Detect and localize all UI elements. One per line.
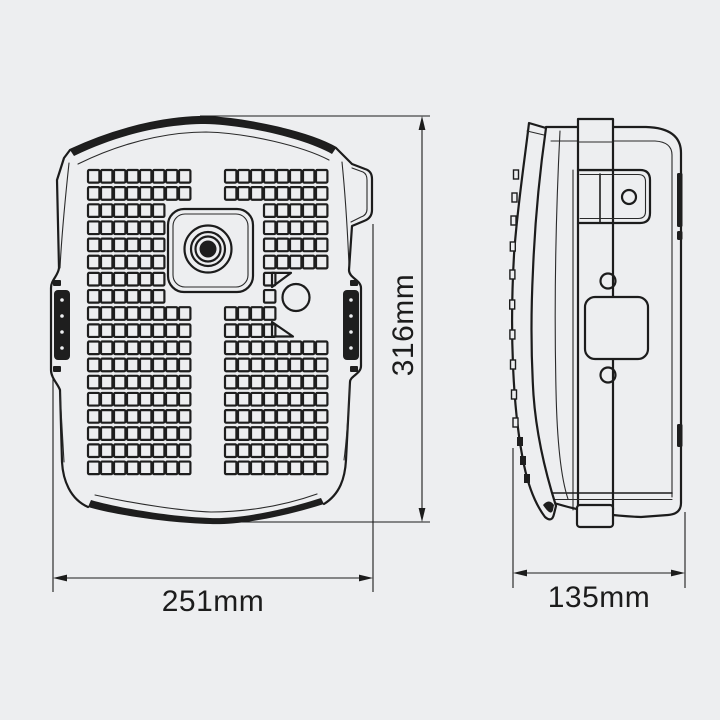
grille-cell xyxy=(88,204,99,217)
grille-cell xyxy=(114,307,125,320)
latch-tooth-dark xyxy=(517,437,523,446)
grille-cell xyxy=(166,324,177,337)
width-dimension-label: 251mm xyxy=(162,585,265,618)
grille-cell xyxy=(127,393,138,406)
grille-cell xyxy=(179,427,190,440)
grille-cell xyxy=(303,410,314,423)
grille-cell xyxy=(251,393,262,406)
grille-cell xyxy=(303,256,314,269)
grille-cell xyxy=(290,342,301,355)
grille-cell xyxy=(88,376,99,389)
grille-cell xyxy=(153,239,164,252)
grille-cell xyxy=(251,187,262,200)
grille-cell xyxy=(264,359,275,372)
grille-cell xyxy=(251,359,262,372)
grille-cell xyxy=(277,462,288,475)
grille-cell xyxy=(127,170,138,183)
grille-cell xyxy=(179,307,190,320)
grille-cell xyxy=(316,239,327,252)
grille-cell xyxy=(101,324,112,337)
grille-cell xyxy=(290,359,301,372)
grille-cell xyxy=(88,221,99,234)
grille-cell xyxy=(264,170,275,183)
grille-cell xyxy=(264,462,275,475)
grille-cell xyxy=(127,444,138,457)
grille-cell xyxy=(114,444,125,457)
grille-cell xyxy=(127,462,138,475)
grille-cell xyxy=(277,187,288,200)
grille-cell xyxy=(114,462,125,475)
grille-cell xyxy=(166,359,177,372)
latch-dot xyxy=(60,330,64,334)
grille-cell xyxy=(179,187,190,200)
grille-cell xyxy=(127,256,138,269)
strap-block-top xyxy=(578,119,613,170)
grille-cell xyxy=(238,410,249,423)
grille-cell xyxy=(303,187,314,200)
grille-cell xyxy=(140,239,151,252)
grille-cell xyxy=(153,221,164,234)
grille-cell xyxy=(277,342,288,355)
grille-cell xyxy=(225,359,236,372)
grille-cell xyxy=(264,239,275,252)
grille-cell xyxy=(179,359,190,372)
grille-cell xyxy=(225,324,236,337)
grille-cell xyxy=(166,393,177,406)
grille-cell xyxy=(140,393,151,406)
front-view xyxy=(51,117,372,524)
grille-cell xyxy=(264,376,275,389)
grille-cell xyxy=(140,273,151,286)
grille-cell xyxy=(290,204,301,217)
grille-cell xyxy=(153,376,164,389)
grille-cell xyxy=(264,342,275,355)
grille-cell xyxy=(225,410,236,423)
grille-cell xyxy=(127,307,138,320)
grille-cell xyxy=(290,376,301,389)
grille-cell xyxy=(88,342,99,355)
grille-cell xyxy=(225,462,236,475)
grille-cell xyxy=(238,376,249,389)
grille-cell xyxy=(153,427,164,440)
grille-cell xyxy=(88,273,99,286)
grille-cell xyxy=(140,307,151,320)
latch-tooth-dark xyxy=(524,474,530,483)
latch-tooth xyxy=(511,216,516,225)
grille-cell xyxy=(114,256,125,269)
grille-cell xyxy=(316,342,327,355)
grille-cell xyxy=(303,239,314,252)
side-view xyxy=(510,119,683,527)
latch-tooth xyxy=(513,418,518,427)
hinge-segment xyxy=(677,173,683,227)
grille-cell xyxy=(114,393,125,406)
grille-cell xyxy=(88,444,99,457)
grille-cell xyxy=(114,273,125,286)
grille-cell xyxy=(277,376,288,389)
hinge-segment xyxy=(677,424,683,447)
grille-cell xyxy=(179,444,190,457)
latch-dot xyxy=(349,298,353,302)
grille-cell xyxy=(101,187,112,200)
grille-cell xyxy=(264,273,275,286)
grille-cell xyxy=(277,444,288,457)
grille-cell xyxy=(153,393,164,406)
grille-cell xyxy=(166,376,177,389)
grille-cell xyxy=(153,290,164,303)
latch-tooth xyxy=(512,390,517,399)
grille-cell xyxy=(88,410,99,423)
grille-cell xyxy=(88,462,99,475)
grille-cell xyxy=(277,239,288,252)
grille-cell xyxy=(153,307,164,320)
grille-cell xyxy=(166,462,177,475)
grille-cell xyxy=(316,359,327,372)
grille-cell xyxy=(101,427,112,440)
latch-dot xyxy=(60,346,64,350)
grille-cell xyxy=(166,410,177,423)
grille-cell xyxy=(140,170,151,183)
grille-cell xyxy=(277,204,288,217)
grille-cell xyxy=(290,444,301,457)
grille-cell xyxy=(290,427,301,440)
grille-cell xyxy=(290,239,301,252)
grille-cell xyxy=(140,256,151,269)
grille-cell xyxy=(88,256,99,269)
camera-lens-housing xyxy=(168,209,253,292)
grille-cell xyxy=(140,187,151,200)
grille-cell xyxy=(101,444,112,457)
grille-cell xyxy=(101,393,112,406)
grille-cell xyxy=(264,393,275,406)
grille-cell xyxy=(140,376,151,389)
grille-cell xyxy=(140,444,151,457)
grille-cell xyxy=(166,444,177,457)
grille-cell xyxy=(127,410,138,423)
grille-cell xyxy=(153,324,164,337)
grille-cell xyxy=(140,462,151,475)
grille-cell xyxy=(114,427,125,440)
grille-cell xyxy=(316,444,327,457)
grille-cell xyxy=(114,204,125,217)
grille-cell xyxy=(101,256,112,269)
grille-cell xyxy=(166,170,177,183)
grille-cell xyxy=(114,170,125,183)
camera-lens xyxy=(200,241,217,258)
grille-cell xyxy=(238,187,249,200)
grille-cell xyxy=(114,410,125,423)
latch-tooth xyxy=(510,330,515,339)
grille-cell xyxy=(316,376,327,389)
grille-cell xyxy=(225,170,236,183)
grille-cell xyxy=(238,170,249,183)
grille-cell xyxy=(316,256,327,269)
grille-cell xyxy=(179,324,190,337)
grille-cell xyxy=(114,359,125,372)
latch-tooth xyxy=(510,300,515,309)
grille-cell xyxy=(264,204,275,217)
battery-door xyxy=(585,297,648,359)
grille-cell xyxy=(101,462,112,475)
grille-cell xyxy=(251,444,262,457)
grille-cell xyxy=(316,187,327,200)
grille-cell xyxy=(264,427,275,440)
grille-cell xyxy=(238,342,249,355)
grille-cell xyxy=(225,307,236,320)
grille-cell xyxy=(179,376,190,389)
grille-cell xyxy=(316,221,327,234)
latch-tooth xyxy=(510,242,515,251)
grille-cell xyxy=(238,359,249,372)
grille-cell xyxy=(88,307,99,320)
grille-cell xyxy=(101,273,112,286)
grille-cell xyxy=(264,324,275,337)
grille-cell xyxy=(251,324,262,337)
grille-cell xyxy=(316,204,327,217)
grille-cell xyxy=(238,462,249,475)
grille-cell xyxy=(166,342,177,355)
grille-cell xyxy=(127,427,138,440)
latch-dot xyxy=(349,346,353,350)
grille-cell xyxy=(101,410,112,423)
grille-cell xyxy=(264,307,275,320)
grille-cell xyxy=(153,359,164,372)
grille-cell xyxy=(251,462,262,475)
strap-block-foot xyxy=(577,505,613,527)
grille-cell xyxy=(101,221,112,234)
grille-cell xyxy=(88,359,99,372)
grille-cell xyxy=(303,376,314,389)
grille-cell xyxy=(114,342,125,355)
grille-cell xyxy=(166,427,177,440)
grille-cell xyxy=(225,444,236,457)
grille-cell xyxy=(101,170,112,183)
grille-cell xyxy=(303,342,314,355)
hinge-segment xyxy=(677,231,683,240)
grille-cell xyxy=(303,170,314,183)
grille-cell xyxy=(114,187,125,200)
grille-cell xyxy=(153,410,164,423)
latch-dot xyxy=(349,330,353,334)
grille-cell xyxy=(153,273,164,286)
grille-cell xyxy=(277,221,288,234)
grille-cell xyxy=(101,239,112,252)
grille-cell xyxy=(277,170,288,183)
grille-cell xyxy=(114,376,125,389)
grille-cell xyxy=(251,307,262,320)
grille-cell xyxy=(153,462,164,475)
grille-cell xyxy=(277,359,288,372)
grille-cell xyxy=(88,324,99,337)
grille-cell xyxy=(264,444,275,457)
grille-cell xyxy=(153,204,164,217)
grille-cell xyxy=(238,393,249,406)
technical-dimension-drawing: 316mm 251mm 135mm xyxy=(0,0,720,720)
grille-cell xyxy=(127,204,138,217)
grille-cell xyxy=(127,239,138,252)
grille-cell xyxy=(238,444,249,457)
grille-cell xyxy=(251,376,262,389)
grille-cell xyxy=(140,359,151,372)
grille-cell xyxy=(225,427,236,440)
grille-cell xyxy=(140,221,151,234)
grille-cell xyxy=(140,410,151,423)
grille-cell xyxy=(101,342,112,355)
grille-cell xyxy=(140,204,151,217)
grille-cell xyxy=(290,462,301,475)
grille-cell xyxy=(290,221,301,234)
grille-cell xyxy=(127,376,138,389)
grille-cell xyxy=(140,324,151,337)
bottom-band xyxy=(88,498,324,524)
left-latch xyxy=(53,280,70,372)
grille-cell xyxy=(88,393,99,406)
grille-cell xyxy=(290,256,301,269)
grille-cell xyxy=(101,376,112,389)
grille-cell xyxy=(290,393,301,406)
depth-dimension-label: 135mm xyxy=(548,581,651,614)
grille-cell xyxy=(127,359,138,372)
grille-cell xyxy=(153,187,164,200)
grille-cell xyxy=(127,342,138,355)
bracket-hole xyxy=(622,190,636,204)
grille-cell xyxy=(290,410,301,423)
grille-cell xyxy=(290,170,301,183)
grille-cell xyxy=(153,444,164,457)
grille-cell xyxy=(316,410,327,423)
grille-cell xyxy=(114,221,125,234)
latch-dot xyxy=(60,314,64,318)
grille-cell xyxy=(303,427,314,440)
grille-cell xyxy=(140,427,151,440)
grille-cell xyxy=(179,410,190,423)
grille-cell xyxy=(114,290,125,303)
grille-cell xyxy=(303,221,314,234)
grille-cell xyxy=(153,256,164,269)
pir-sensor xyxy=(283,284,310,311)
grille-cell xyxy=(264,410,275,423)
latch-tooth xyxy=(511,360,516,369)
grille-cell xyxy=(127,187,138,200)
grille-cell xyxy=(179,393,190,406)
grille-cell xyxy=(166,187,177,200)
grille-cell xyxy=(251,170,262,183)
grille-cell xyxy=(251,410,262,423)
grille-cell xyxy=(88,187,99,200)
grille-cell xyxy=(251,427,262,440)
grille-cell xyxy=(277,427,288,440)
latch-tooth-dark xyxy=(520,456,526,465)
grille-cell xyxy=(316,462,327,475)
grille-cell xyxy=(88,170,99,183)
grille-cell xyxy=(88,427,99,440)
grille-cell xyxy=(225,393,236,406)
grille-cell xyxy=(290,187,301,200)
grille-cell xyxy=(153,342,164,355)
grille-cell xyxy=(127,324,138,337)
grille-cell xyxy=(316,393,327,406)
grille-cell xyxy=(303,204,314,217)
grille-cell xyxy=(264,290,275,303)
grille-cell xyxy=(303,444,314,457)
grille-cell xyxy=(277,393,288,406)
grille-cell xyxy=(127,273,138,286)
grille-cell xyxy=(225,187,236,200)
right-latch xyxy=(343,280,359,372)
grille-cell xyxy=(153,170,164,183)
grille-cell xyxy=(251,342,262,355)
grille-cell xyxy=(101,359,112,372)
grille-cell xyxy=(277,410,288,423)
latch-dot xyxy=(349,314,353,318)
grille-cell xyxy=(101,290,112,303)
grille-cell xyxy=(127,221,138,234)
grille-cell xyxy=(179,462,190,475)
grille-cell xyxy=(264,187,275,200)
grille-cell xyxy=(114,324,125,337)
grille-cell xyxy=(303,462,314,475)
front-cover-profile xyxy=(510,123,556,519)
grille-cell xyxy=(316,427,327,440)
grille-cell xyxy=(140,342,151,355)
latch-tooth xyxy=(514,170,519,179)
grille-cell xyxy=(179,342,190,355)
grille-cell xyxy=(277,256,288,269)
grille-cell xyxy=(101,307,112,320)
grille-cell xyxy=(114,239,125,252)
grille-cell xyxy=(88,239,99,252)
latch-tooth xyxy=(510,270,515,279)
grille-cell xyxy=(88,290,99,303)
grille-cell xyxy=(179,170,190,183)
grille-cell xyxy=(225,376,236,389)
grille-cell xyxy=(225,342,236,355)
latch-dot xyxy=(60,298,64,302)
grille-cell xyxy=(303,393,314,406)
grille-cell xyxy=(140,290,151,303)
grille-cell xyxy=(316,170,327,183)
grille-cell xyxy=(238,324,249,337)
grille-cell xyxy=(101,204,112,217)
grille-cell xyxy=(264,256,275,269)
latch-tooth xyxy=(512,193,517,202)
height-dimension-label: 316mm xyxy=(387,274,420,377)
grille-cell xyxy=(127,290,138,303)
grille-cell xyxy=(303,359,314,372)
grille-cell xyxy=(238,307,249,320)
grille-cell xyxy=(166,307,177,320)
grille-cell xyxy=(264,221,275,234)
grille-cell xyxy=(238,427,249,440)
